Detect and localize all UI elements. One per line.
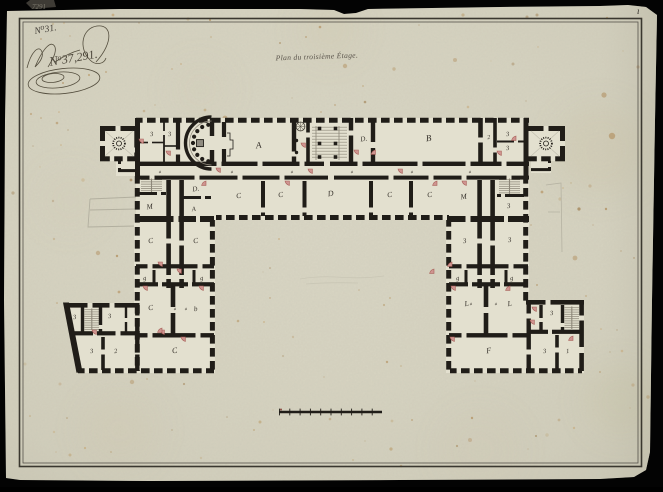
- svg-text:A: A: [190, 206, 196, 214]
- svg-text:D.: D.: [191, 185, 200, 194]
- svg-text:ı: ı: [637, 6, 640, 16]
- svg-text:D.: D.: [359, 135, 368, 144]
- svg-text:7291: 7291: [32, 3, 46, 11]
